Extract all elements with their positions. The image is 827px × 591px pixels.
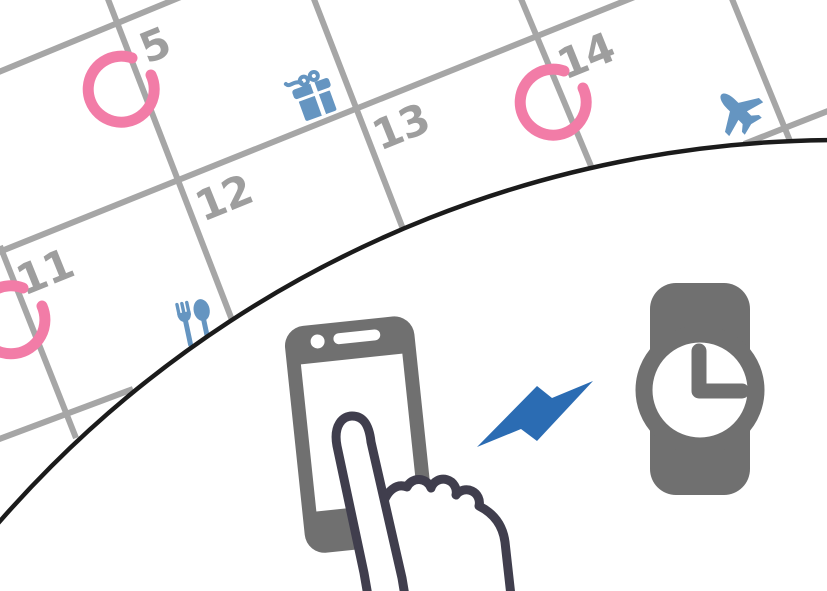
gift-icon <box>285 66 340 124</box>
date-14: 14 <box>550 23 621 90</box>
illustration-canvas: 5 11 12 13 14 <box>0 0 827 591</box>
date-5: 5 <box>132 17 177 73</box>
airplane-body <box>704 77 770 143</box>
sync-illustration: 5 11 12 13 14 <box>0 0 827 591</box>
smartwatch <box>644 283 756 495</box>
fork <box>177 302 196 345</box>
airplane-icon <box>704 77 770 143</box>
